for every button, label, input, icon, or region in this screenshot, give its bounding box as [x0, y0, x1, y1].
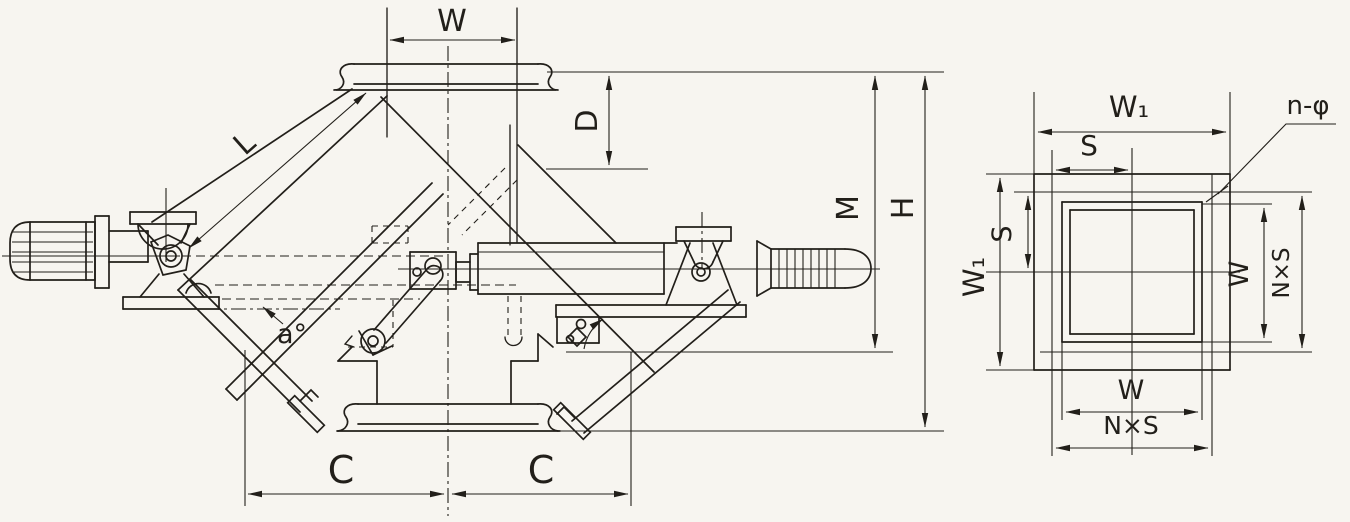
dim-label-w: W: [437, 4, 467, 39]
dim-label-d: D: [570, 109, 605, 132]
technical-drawing: W D L M H C C a° W₁ S n-φ W₁ S W N×S W N…: [0, 0, 1350, 522]
dim-label-w1-top: W₁: [1109, 90, 1149, 124]
dim-label-w-bottom: W: [1118, 375, 1145, 406]
drawing-sheet: W D L M H C C a° W₁ S n-φ W₁ S W N×S W N…: [0, 0, 1350, 522]
dim-label-s-top: S: [1080, 129, 1098, 162]
dim-label-nxs-bottom: N×S: [1103, 411, 1159, 440]
dim-label-c-left: C: [328, 448, 355, 492]
angle-label: a°: [277, 319, 307, 350]
dim-label-s-left: S: [987, 225, 1018, 242]
dim-label-h: H: [886, 197, 921, 220]
paper-background: [0, 0, 1350, 522]
dim-label-w-right: W: [1224, 261, 1255, 288]
dim-label-w1-left: W₁: [957, 257, 991, 297]
dim-label-m: M: [831, 195, 866, 221]
dim-label-nxs-right: N×S: [1269, 247, 1295, 298]
dim-label-c-right: C: [528, 448, 555, 492]
bolt-note-label: n-φ: [1286, 91, 1329, 121]
